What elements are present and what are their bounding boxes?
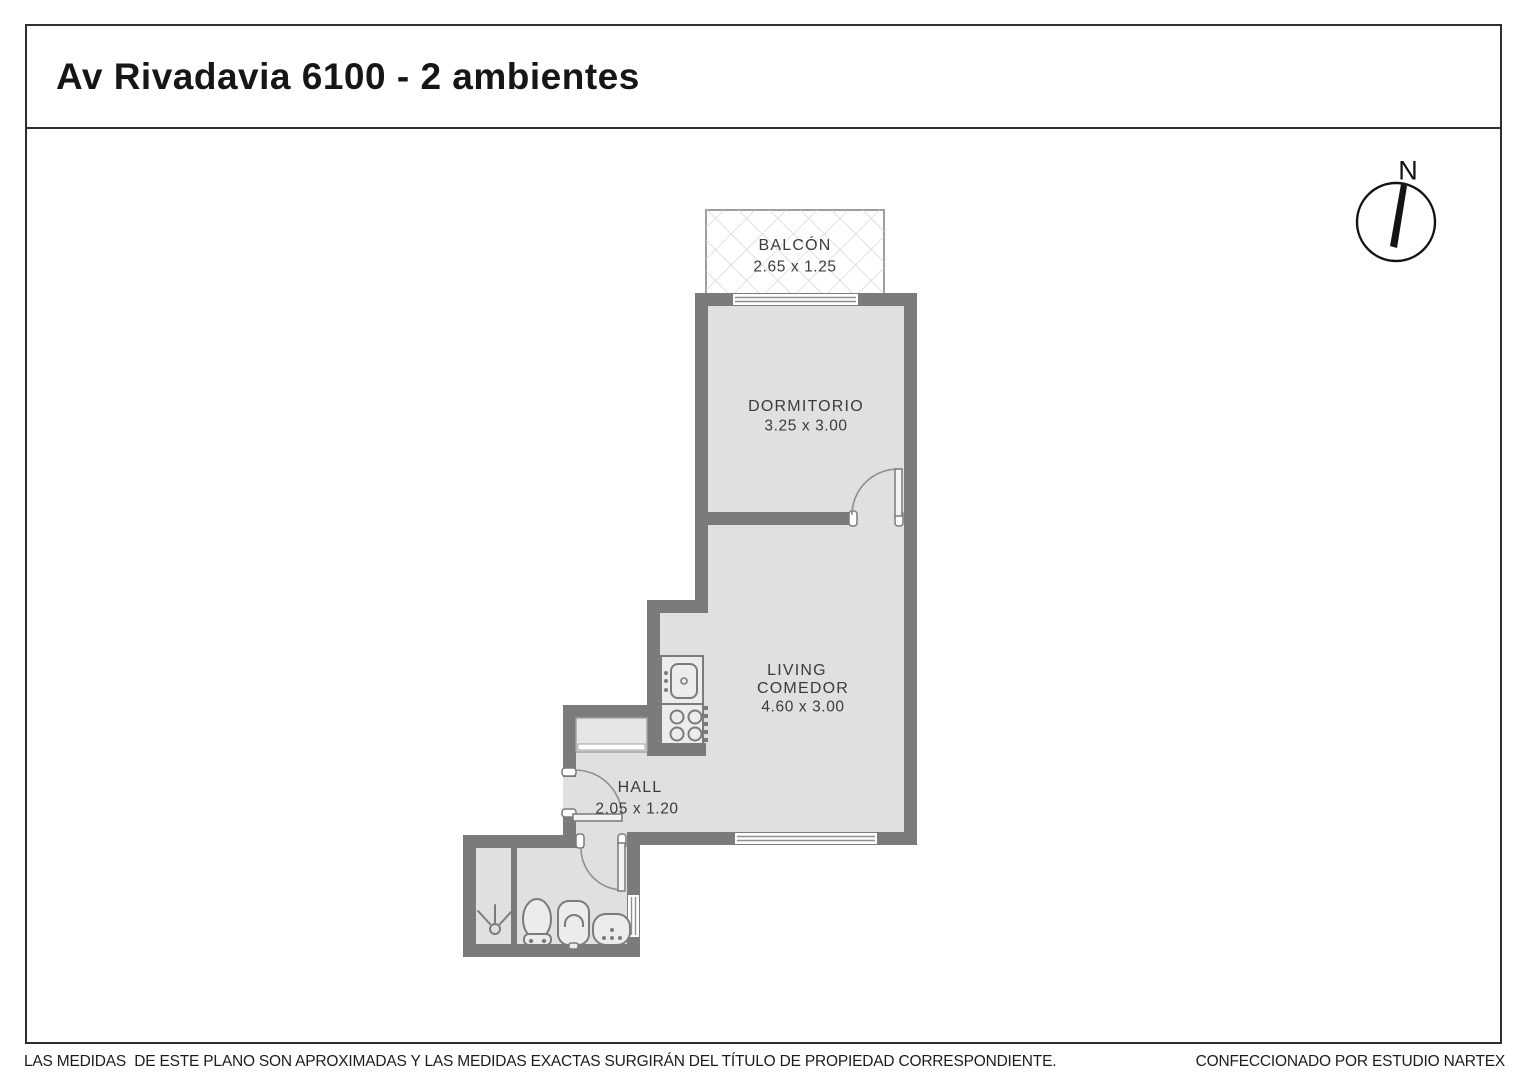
floor-plan-page: Av Rivadavia 6100 - 2 ambientes: [0, 0, 1528, 1080]
bidet-icon: [558, 901, 589, 949]
footer-credit: CONFECCIONADO POR ESTUDIO NARTEX: [1196, 1053, 1505, 1071]
bedroom-label: DORMITORIO: [748, 399, 864, 415]
hall-closet: [576, 718, 647, 752]
hall-dimensions: 2.05 x 1.20: [595, 801, 678, 817]
footer-disclaimer: LAS MEDIDAS DE ESTE PLANO SON APROXIMADA…: [24, 1053, 1056, 1071]
kitchen-stove: [661, 704, 706, 744]
kitchen-sink-counter: [661, 656, 703, 704]
bathroom-sink-icon: [593, 914, 630, 945]
balcony-label: BALCÓN: [759, 238, 832, 254]
toilet-icon: [523, 899, 551, 945]
bedroom-dimensions: 3.25 x 3.00: [764, 418, 847, 434]
living-window: [735, 833, 877, 844]
balcony-window: [733, 294, 858, 305]
living-label-line2: COMEDOR: [757, 681, 849, 697]
kitchen-fixtures: [661, 656, 706, 744]
balcony-dimensions: 2.65 x 1.25: [753, 259, 836, 275]
floor-plan-drawing: [0, 0, 1528, 1080]
living-dimensions: 4.60 x 3.00: [761, 699, 844, 715]
compass-north-label: N: [1398, 158, 1418, 185]
compass-icon: [1357, 183, 1435, 261]
living-label-line1: LIVING: [767, 663, 827, 679]
hall-label: HALL: [618, 780, 663, 796]
